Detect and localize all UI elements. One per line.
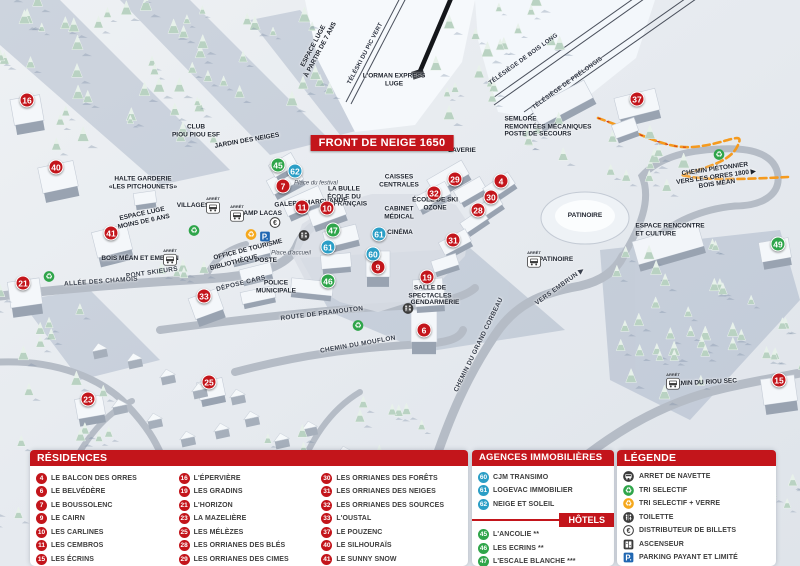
item-label: LES CARLINES	[51, 529, 104, 536]
map-marker-33: 33	[197, 289, 212, 304]
map-marker-7: 7	[276, 179, 291, 194]
map-marker-32: 32	[427, 186, 442, 201]
item-label: L'ESCALE BLANCHE ***	[493, 558, 576, 565]
legende-item-label: PARKING PAYANT ET LIMITÉ	[639, 554, 738, 561]
agencies-list: 60CJM TRANSIMO61LOGEVAC IMMOBILIER62NEIG…	[472, 466, 614, 510]
hotels-divider-line	[472, 519, 559, 521]
residences-column: 4LE BALCON DES ORRES6LE BELVÉDÈRE7LE BOU…	[36, 472, 179, 565]
legend-item-19: 19LES GRADINS	[179, 486, 322, 498]
item-label: LE BOUSSOLENC	[51, 502, 113, 509]
legend-item-28: 28LES ORRIANES DES BLÉS	[179, 540, 322, 552]
legend-item-23: 23LA MAZELIÈRE	[179, 513, 322, 525]
legend-item-32: 32LES ORRIANES DES SOURCES	[321, 499, 464, 511]
map-marker-49: 49	[771, 237, 786, 252]
item-number-badge: 37	[321, 527, 332, 538]
legende-item: ASCENSEUR	[623, 539, 771, 551]
item-number-badge: 6	[36, 486, 47, 497]
item-label: L'ANCOLIE **	[493, 531, 539, 538]
item-number-badge: 41	[321, 554, 332, 565]
item-number-badge: 61	[478, 485, 489, 496]
item-number-badge: 45	[478, 529, 489, 540]
item-number-badge: 40	[321, 540, 332, 551]
map-marker-9: 9	[371, 260, 386, 275]
residences-column: 16L'ÉPERVIÈRE19LES GRADINS21L'HORIZON23L…	[179, 472, 322, 565]
legend-item-62: 62NEIGE ET SOLEIL	[478, 498, 609, 510]
item-label: LES ORRIANES DES CIMES	[194, 556, 289, 563]
legende-item-label: DISTRIBUTEUR DE BILLETS	[639, 527, 736, 534]
svg-text:€: €	[627, 528, 631, 535]
map-marker-61: 61	[372, 227, 387, 242]
resort-map-screenshot: TÉLÉSKI DU PIC VERTTÉLÉSIÈGE DE BOIS LON…	[0, 0, 800, 566]
legende-item: ♻TRI SELECTIF + VERRE	[623, 498, 771, 510]
map-marker-16: 16	[20, 93, 35, 108]
svg-text:P.: P.	[625, 554, 631, 563]
item-label: L'OUSTAL	[336, 515, 371, 522]
item-label: LES MÉLÈZES	[194, 529, 244, 536]
legend-item-46: 46LES ECRINS **	[478, 542, 609, 554]
map-marker-6: 6	[417, 323, 432, 338]
agencies-header: AGENCES IMMOBILIÈRES	[472, 450, 614, 466]
item-label: LES ORRIANES DES BLÉS	[194, 542, 286, 549]
map-marker-28: 28	[471, 203, 486, 218]
residences-panel: RÉSIDENCES 4LE BALCON DES ORRES6LE BELVÉ…	[30, 450, 468, 566]
legende-item: ♻TRI SELECTIF	[623, 485, 771, 497]
item-label: LES ECRINS **	[493, 545, 544, 552]
item-label: LE BELVÉDÈRE	[51, 488, 105, 495]
item-number-badge: 11	[36, 540, 47, 551]
item-label: LE POUZENC	[336, 529, 382, 536]
bus-icon	[623, 471, 634, 482]
legend-item-47: 47L'ESCALE BLANCHE ***	[478, 556, 609, 566]
map-marker-19: 19	[420, 270, 435, 285]
map-marker-10: 10	[320, 201, 335, 216]
item-number-badge: 25	[179, 527, 190, 538]
item-number-badge: 16	[179, 473, 190, 484]
map-marker-46: 46	[321, 274, 336, 289]
legend-item-61: 61LOGEVAC IMMOBILIER	[478, 485, 609, 497]
legend-item-9: 9LE CAIRN	[36, 513, 179, 525]
legende-item: ARRET DE NAVETTE	[623, 471, 771, 483]
legend-item-45: 45L'ANCOLIE **	[478, 529, 609, 541]
item-number-badge: 33	[321, 513, 332, 524]
item-label: LE BALCON DES ORRES	[51, 475, 137, 482]
item-number-badge: 10	[36, 527, 47, 538]
item-number-badge: 4	[36, 473, 47, 484]
map-marker-61: 61	[321, 240, 336, 255]
map-marker-30: 30	[484, 190, 499, 205]
item-label: LE SILHOURAÏS	[336, 542, 391, 549]
item-number-badge: 28	[179, 540, 190, 551]
recycle-orange-icon: ♻	[623, 498, 634, 509]
map-marker-40: 40	[49, 160, 64, 175]
legende-item-label: TOILETTE	[639, 514, 674, 521]
item-number-badge: 9	[36, 513, 47, 524]
map-marker-23: 23	[81, 392, 96, 407]
item-number-badge: 46	[478, 543, 489, 554]
legend-item-29: 29LES ORRIANES DES CIMES	[179, 553, 322, 565]
item-number-badge: 19	[179, 486, 190, 497]
legende-item-label: TRI SELECTIF + VERRE	[639, 500, 720, 507]
item-number-badge: 62	[478, 499, 489, 510]
item-label: LE CAIRN	[51, 515, 85, 522]
legende-list: ARRET DE NAVETTE♻TRI SELECTIF♻TRI SELECT…	[617, 466, 776, 564]
elevator-icon	[623, 539, 634, 550]
legende-item-label: TRI SELECTIF	[639, 487, 687, 494]
hotels-header: HÔTELS	[559, 513, 614, 527]
item-label: LA MAZELIÈRE	[194, 515, 247, 522]
legend-item-21: 21L'HORIZON	[179, 499, 322, 511]
item-label: LES CEMBROS	[51, 542, 103, 549]
legende-item-label: ASCENSEUR	[639, 541, 684, 548]
legend-item-33: 33L'OUSTAL	[321, 513, 464, 525]
legend-item-60: 60CJM TRANSIMO	[478, 471, 609, 483]
parking-icon: P.	[623, 552, 634, 563]
svg-text:♻: ♻	[625, 486, 632, 495]
item-label: LES GRADINS	[194, 488, 243, 495]
item-number-badge: 60	[478, 472, 489, 483]
map-marker-41: 41	[104, 226, 119, 241]
item-label: LES ORRIANES DES FORÊTS	[336, 475, 437, 482]
item-number-badge: 29	[179, 554, 190, 565]
map-marker-15: 15	[772, 373, 787, 388]
item-label: NEIGE ET SOLEIL	[493, 501, 554, 508]
toilet-icon	[623, 512, 634, 523]
legende-item-label: ARRET DE NAVETTE	[639, 473, 710, 480]
legende-item: TOILETTE	[623, 512, 771, 524]
item-label: LOGEVAC IMMOBILIER	[493, 487, 573, 494]
map-marker-45: 45	[271, 158, 286, 173]
legend-item-37: 37LE POUZENC	[321, 526, 464, 538]
legend-item-41: 41LE SUNNY SNOW	[321, 553, 464, 565]
item-number-badge: 21	[179, 500, 190, 511]
legend-item-25: 25LES MÉLÈZES	[179, 526, 322, 538]
map-marker-11: 11	[295, 200, 310, 215]
hotels-list: 45L'ANCOLIE **46LES ECRINS **47L'ESCALE …	[472, 529, 614, 566]
item-number-badge: 47	[478, 556, 489, 566]
map-marker-62: 62	[288, 164, 303, 179]
item-label: LES ÉCRINS	[51, 556, 94, 563]
front-de-neige-badge: FRONT DE NEIGE 1650	[311, 135, 454, 151]
agencies-hotels-panel: AGENCES IMMOBILIÈRES 60CJM TRANSIMO61LOG…	[472, 450, 614, 566]
item-label: LES ORRIANES DES NEIGES	[336, 488, 436, 495]
map-marker-60: 60	[366, 247, 381, 262]
legend-item-15: 15LES ÉCRINS	[36, 553, 179, 565]
item-label: LES ORRIANES DES SOURCES	[336, 502, 444, 509]
item-number-badge: 30	[321, 473, 332, 484]
legend-item-30: 30LES ORRIANES DES FORÊTS	[321, 472, 464, 484]
legend-item-31: 31LES ORRIANES DES NEIGES	[321, 486, 464, 498]
map-marker-37: 37	[630, 92, 645, 107]
legende-item: €DISTRIBUTEUR DE BILLETS	[623, 525, 771, 537]
item-label: CJM TRANSIMO	[493, 474, 548, 481]
map-marker-25: 25	[202, 375, 217, 390]
hotels-divider: HÔTELS	[472, 513, 614, 527]
legend-item-16: 16L'ÉPERVIÈRE	[179, 472, 322, 484]
legend-item-6: 6LE BELVÉDÈRE	[36, 486, 179, 498]
legende-item: P.PARKING PAYANT ET LIMITÉ	[623, 552, 771, 564]
item-label: L'HORIZON	[194, 502, 233, 509]
map-marker-4: 4	[494, 174, 509, 189]
legend-item-40: 40LE SILHOURAÏS	[321, 540, 464, 552]
residences-column: 30LES ORRIANES DES FORÊTS31LES ORRIANES …	[321, 472, 464, 565]
residences-header: RÉSIDENCES	[30, 450, 468, 466]
map-marker-29: 29	[448, 172, 463, 187]
recycle-green-icon: ♻	[623, 485, 634, 496]
item-number-badge: 15	[36, 554, 47, 565]
map-marker-31: 31	[446, 233, 461, 248]
item-number-badge: 32	[321, 500, 332, 511]
legende-header: LÉGENDE	[617, 450, 776, 466]
item-number-badge: 7	[36, 500, 47, 511]
map-marker-47: 47	[326, 223, 341, 238]
item-label: LE SUNNY SNOW	[336, 556, 396, 563]
legend-item-11: 11LES CEMBROS	[36, 540, 179, 552]
item-number-badge: 31	[321, 486, 332, 497]
euro-icon: €	[623, 525, 634, 536]
legende-panel: LÉGENDE ARRET DE NAVETTE♻TRI SELECTIF♻TR…	[617, 450, 776, 566]
item-number-badge: 23	[179, 513, 190, 524]
legend-item-7: 7LE BOUSSOLENC	[36, 499, 179, 511]
svg-text:♻: ♻	[625, 499, 632, 508]
residences-columns: 4LE BALCON DES ORRES6LE BELVÉDÈRE7LE BOU…	[30, 466, 468, 566]
legend-item-4: 4LE BALCON DES ORRES	[36, 472, 179, 484]
legend-item-10: 10LES CARLINES	[36, 526, 179, 538]
item-label: L'ÉPERVIÈRE	[194, 475, 241, 482]
map-marker-21: 21	[16, 276, 31, 291]
